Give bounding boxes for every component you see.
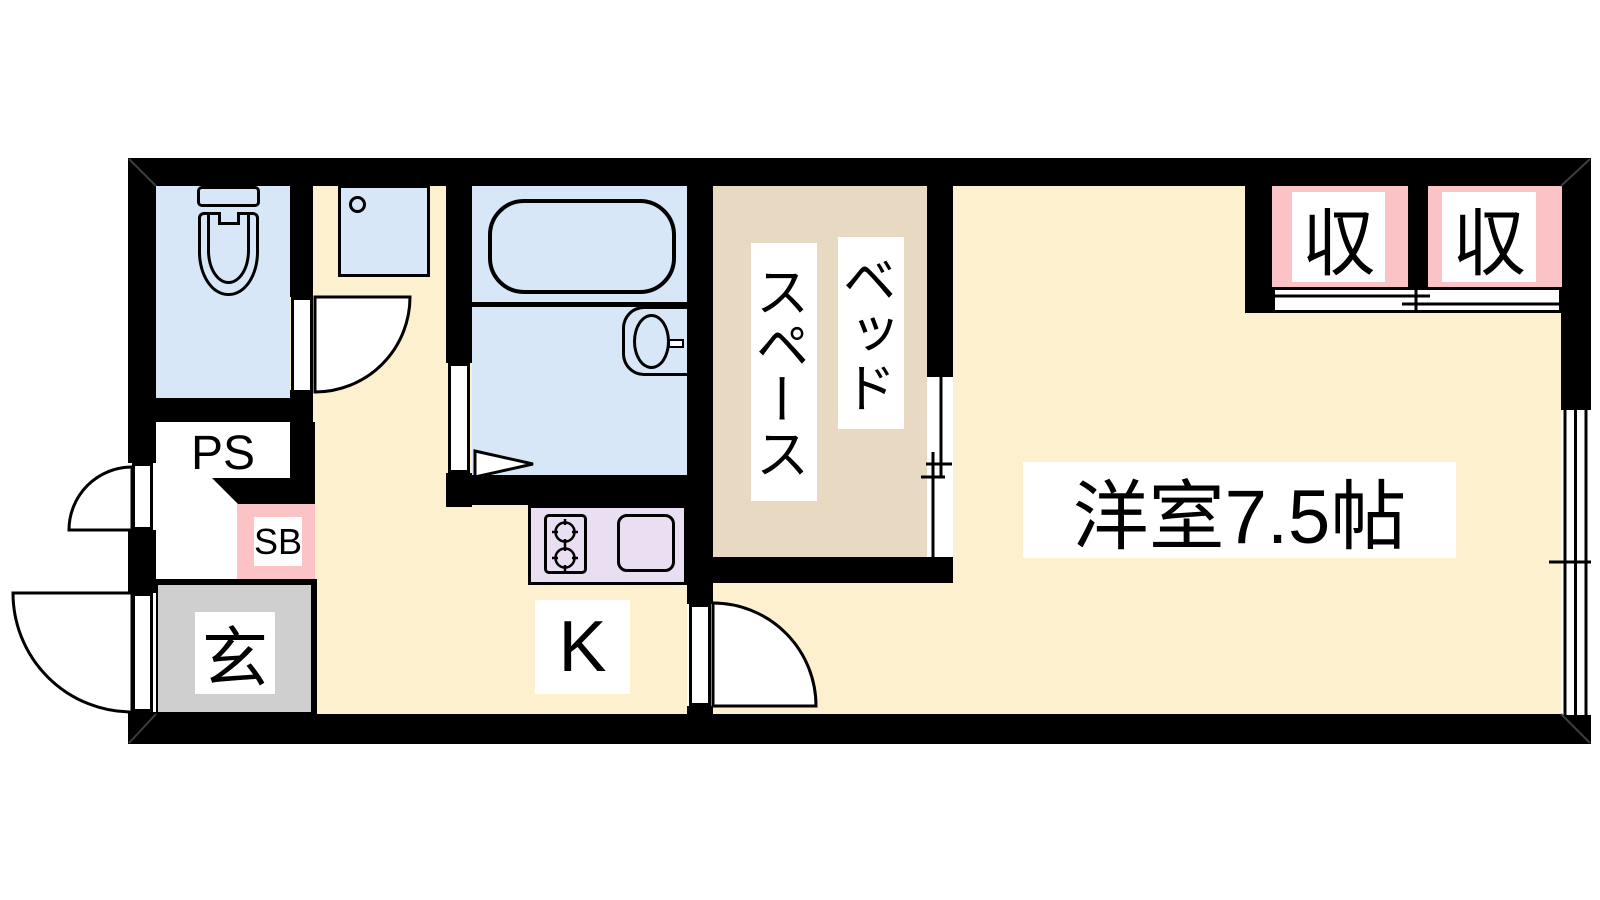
door-leaf-kitchen <box>689 604 711 706</box>
window-right <box>1561 410 1591 715</box>
door-leaf-entrance <box>132 593 153 712</box>
wall-bed-bottom <box>687 557 953 583</box>
sliding-door-channel <box>927 377 953 557</box>
bed-space-label-line2: スペース <box>751 243 817 501</box>
vanity-basin <box>633 314 670 369</box>
wall-bed-right <box>927 186 953 377</box>
wall-bath-bottom <box>446 475 713 505</box>
kitchen-sink <box>617 514 675 572</box>
vestibule <box>156 478 237 581</box>
entrance-label-box: 玄 <box>195 612 275 694</box>
door-leaf-toilet <box>291 297 313 393</box>
floor-plan: PS SB 玄 K ベッド スペース 収 収 洋室7.5帖 <box>0 0 1600 900</box>
closet-left-label-box: 収 <box>1292 192 1385 282</box>
entrance-label-text: 玄 <box>202 605 268 701</box>
bathtub <box>488 199 676 294</box>
bed-space-label-line1: ベッド <box>838 237 904 429</box>
closet-right-label-text: 収 <box>1452 184 1526 291</box>
door-leaf-bathroom <box>448 363 470 473</box>
kitchen-label-text: K <box>558 606 606 688</box>
kitchen-label-box: K <box>535 600 630 694</box>
closet-left-label-text: 収 <box>1302 184 1376 291</box>
door-leaf-upper-exterior <box>132 463 153 530</box>
sb-label-box: SB <box>254 517 302 566</box>
door-swing-entrance <box>13 593 132 712</box>
sliding-closet-doors <box>1272 287 1562 313</box>
western-room-label-text: 洋室7.5帖 <box>1073 455 1407 565</box>
faucet-handle-icon <box>668 339 684 348</box>
ps-label: PS <box>156 424 290 482</box>
bed-space-label-text2: スペース <box>751 264 817 480</box>
gas-stove <box>544 514 587 574</box>
toilet-tank <box>197 186 260 207</box>
wall-bath-right <box>687 186 713 583</box>
wall-bath-left-upper <box>446 186 472 363</box>
western-room-label-box: 洋室7.5帖 <box>1023 462 1456 558</box>
door-swing-upper-exterior <box>69 467 132 530</box>
sb-label-text: SB <box>254 521 302 563</box>
wall-closet-mid <box>1408 186 1428 287</box>
wall-ps-right <box>290 422 315 480</box>
ps-label-text: PS <box>191 426 255 481</box>
bed-space-label-text1: ベッド <box>838 252 904 414</box>
closet-right-label-box: 収 <box>1442 192 1536 282</box>
wall-toilet-right <box>290 186 313 297</box>
wall-closet-left <box>1245 186 1272 313</box>
faucet-circle-icon <box>349 196 366 213</box>
wall-toilet-bottom <box>156 398 313 422</box>
toilet-lid-notch <box>218 212 240 225</box>
